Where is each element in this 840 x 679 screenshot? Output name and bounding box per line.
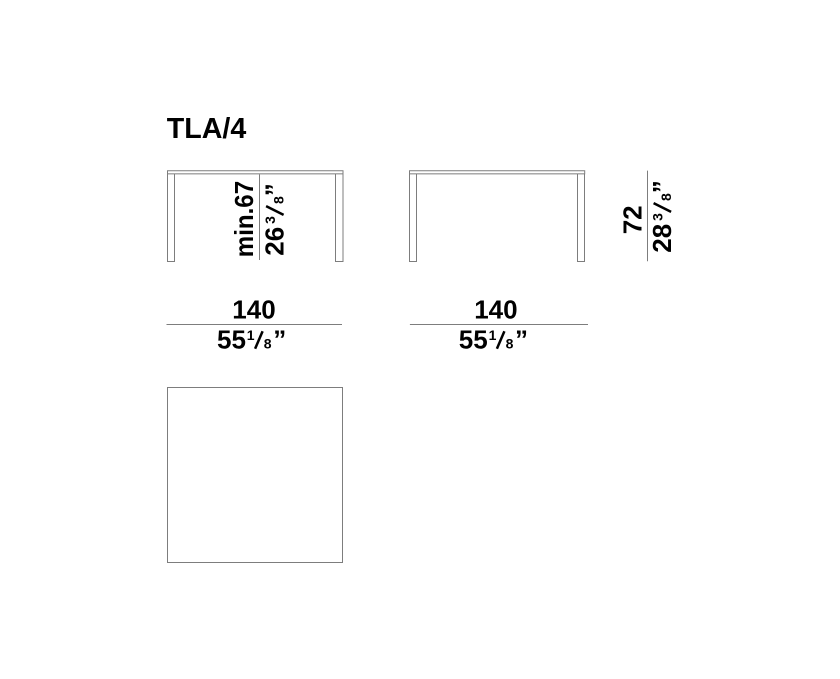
svg-text:3: 3 <box>650 213 666 221</box>
svg-text:3: 3 <box>262 216 278 224</box>
svg-text:1: 1 <box>247 327 255 343</box>
svg-text:”: ” <box>515 324 528 354</box>
svg-text:min.67: min.67 <box>229 181 259 257</box>
svg-text:72: 72 <box>618 205 648 234</box>
svg-text:1: 1 <box>489 327 497 343</box>
svg-text:8: 8 <box>506 335 514 351</box>
svg-text:55: 55 <box>459 324 488 354</box>
svg-text:8: 8 <box>264 335 272 351</box>
svg-text:”: ” <box>273 324 286 354</box>
svg-text:”: ” <box>259 183 289 196</box>
svg-text:28: 28 <box>647 224 677 253</box>
svg-text:26: 26 <box>259 227 289 256</box>
svg-text:”: ” <box>647 180 677 193</box>
svg-text:55: 55 <box>217 324 246 354</box>
svg-text:140: 140 <box>474 295 517 325</box>
svg-text:TLA/4: TLA/4 <box>167 113 247 145</box>
svg-text:140: 140 <box>232 295 275 325</box>
